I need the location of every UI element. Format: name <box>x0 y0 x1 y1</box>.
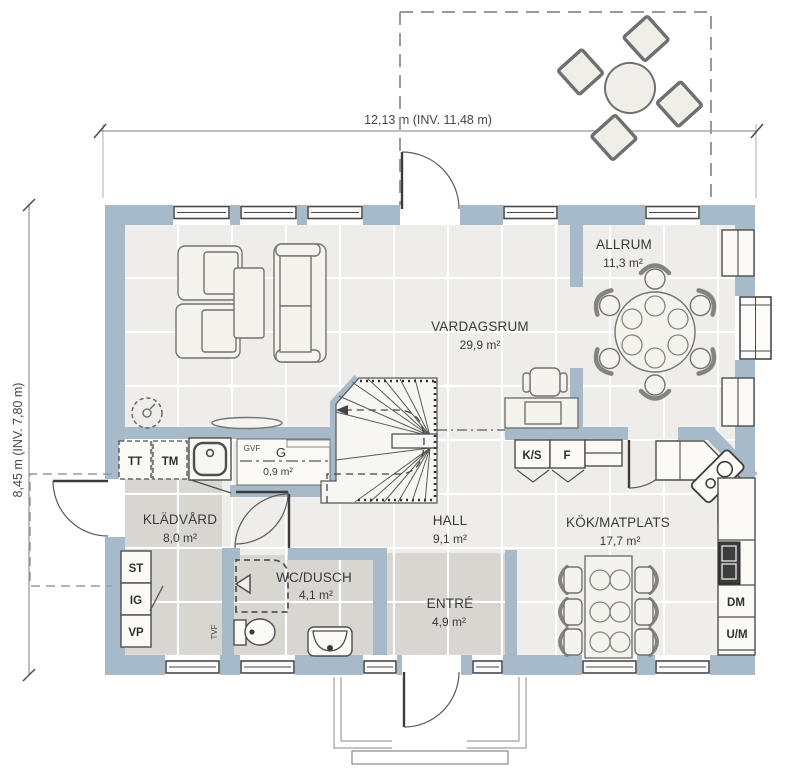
patio-table <box>598 56 661 119</box>
coffee-table <box>234 268 264 338</box>
tm-label: TM <box>162 456 179 468</box>
room-kladvard-area: 8,0 m² <box>163 531 197 545</box>
wall-kitchen-north-a <box>505 427 628 440</box>
room-vardagsrum-name: VARDAGSRUM <box>431 319 529 334</box>
window <box>363 655 397 675</box>
wall-wc-north-a <box>222 548 240 560</box>
window <box>165 655 220 675</box>
dm-label: DM <box>727 597 745 609</box>
side-stoop-outline <box>30 474 112 586</box>
wall-allrum-stub-top <box>570 225 583 287</box>
dimension-left: 8,45 m (INV. 7,80 m) <box>11 199 35 681</box>
room-g-name: G <box>276 445 286 460</box>
room-allrum-name: ALLRUM <box>596 237 652 252</box>
room-kladvard-name: KLÄDVÅRD <box>143 512 217 527</box>
gvf-label: GVF <box>244 444 261 453</box>
window <box>307 205 363 225</box>
room-vardagsrum-area: 29,9 m² <box>460 338 501 352</box>
room-entre-area: 4,9 m² <box>432 615 466 629</box>
desk <box>505 398 578 428</box>
tt-label: TT <box>128 456 142 468</box>
ig-label: IG <box>130 595 142 607</box>
stair-landing <box>392 434 437 448</box>
armchair <box>176 304 240 358</box>
sofa <box>274 244 326 362</box>
desk-chair <box>523 368 567 396</box>
wall-kladvard-north <box>105 427 335 439</box>
kitchen-dining-table <box>560 556 657 658</box>
wall-kladvard-east <box>222 550 234 655</box>
window <box>173 205 230 225</box>
window <box>240 205 297 225</box>
patio-chair <box>558 49 603 94</box>
bookshelf <box>722 378 754 426</box>
window <box>645 205 700 225</box>
dimension-height-label: 8,45 m (INV. 7,80 m) <box>11 383 25 498</box>
tvf-label: TVF <box>210 624 219 639</box>
f-label: F <box>563 450 570 462</box>
front-door <box>402 655 461 727</box>
room-hall-area: 9,1 m² <box>433 532 467 546</box>
vp-label: VP <box>128 627 144 639</box>
floorplan-drawing: 12,13 m (INV. 11,48 m) 8,45 m (INV. 7,80… <box>0 0 800 768</box>
floorplan-page: 12,13 m (INV. 11,48 m) 8,45 m (INV. 7,80… <box>0 0 800 768</box>
ks-label: K/S <box>522 450 542 462</box>
patio-chair <box>623 16 668 61</box>
wall-wc-east <box>373 548 387 655</box>
room-hall-name: HALL <box>433 513 468 528</box>
toilet <box>234 619 275 645</box>
washbasin <box>308 627 352 656</box>
room-wc-name: WC/DUSCH <box>276 570 352 585</box>
um-label: U/M <box>726 629 747 641</box>
room-kok-area: 17,7 m² <box>600 534 641 548</box>
laundry-sink <box>194 443 226 475</box>
window <box>503 205 558 225</box>
room-entre-name: ENTRÉ <box>427 596 474 611</box>
patio-chair <box>657 81 702 126</box>
window <box>240 655 295 675</box>
stove <box>719 542 740 584</box>
patio-door <box>400 152 460 225</box>
wall-wc-north-b <box>288 548 387 560</box>
patio <box>400 0 723 205</box>
window <box>655 655 710 675</box>
radiator <box>212 418 282 429</box>
window <box>472 655 503 675</box>
patio-chair <box>591 115 636 160</box>
closet-g: GVF G 0,9 m² <box>237 439 330 485</box>
armchair <box>178 246 242 300</box>
porch-step <box>352 751 508 764</box>
room-allrum-area: 11,3 m² <box>603 256 643 270</box>
room-kok-name: KÖK/MATPLATS <box>566 515 670 530</box>
wall-entre-east <box>505 550 517 655</box>
dimension-width-label: 12,13 m (INV. 11,48 m) <box>364 113 492 127</box>
dimension-top: 12,13 m (INV. 11,48 m) <box>94 113 763 198</box>
bay-window <box>735 296 771 360</box>
st-label: ST <box>129 563 144 575</box>
bookshelf <box>722 230 754 276</box>
room-g-area: 0,9 m² <box>263 466 293 478</box>
room-wc-area: 4,1 m² <box>299 588 333 602</box>
outdoor-dining-set <box>537 0 723 181</box>
